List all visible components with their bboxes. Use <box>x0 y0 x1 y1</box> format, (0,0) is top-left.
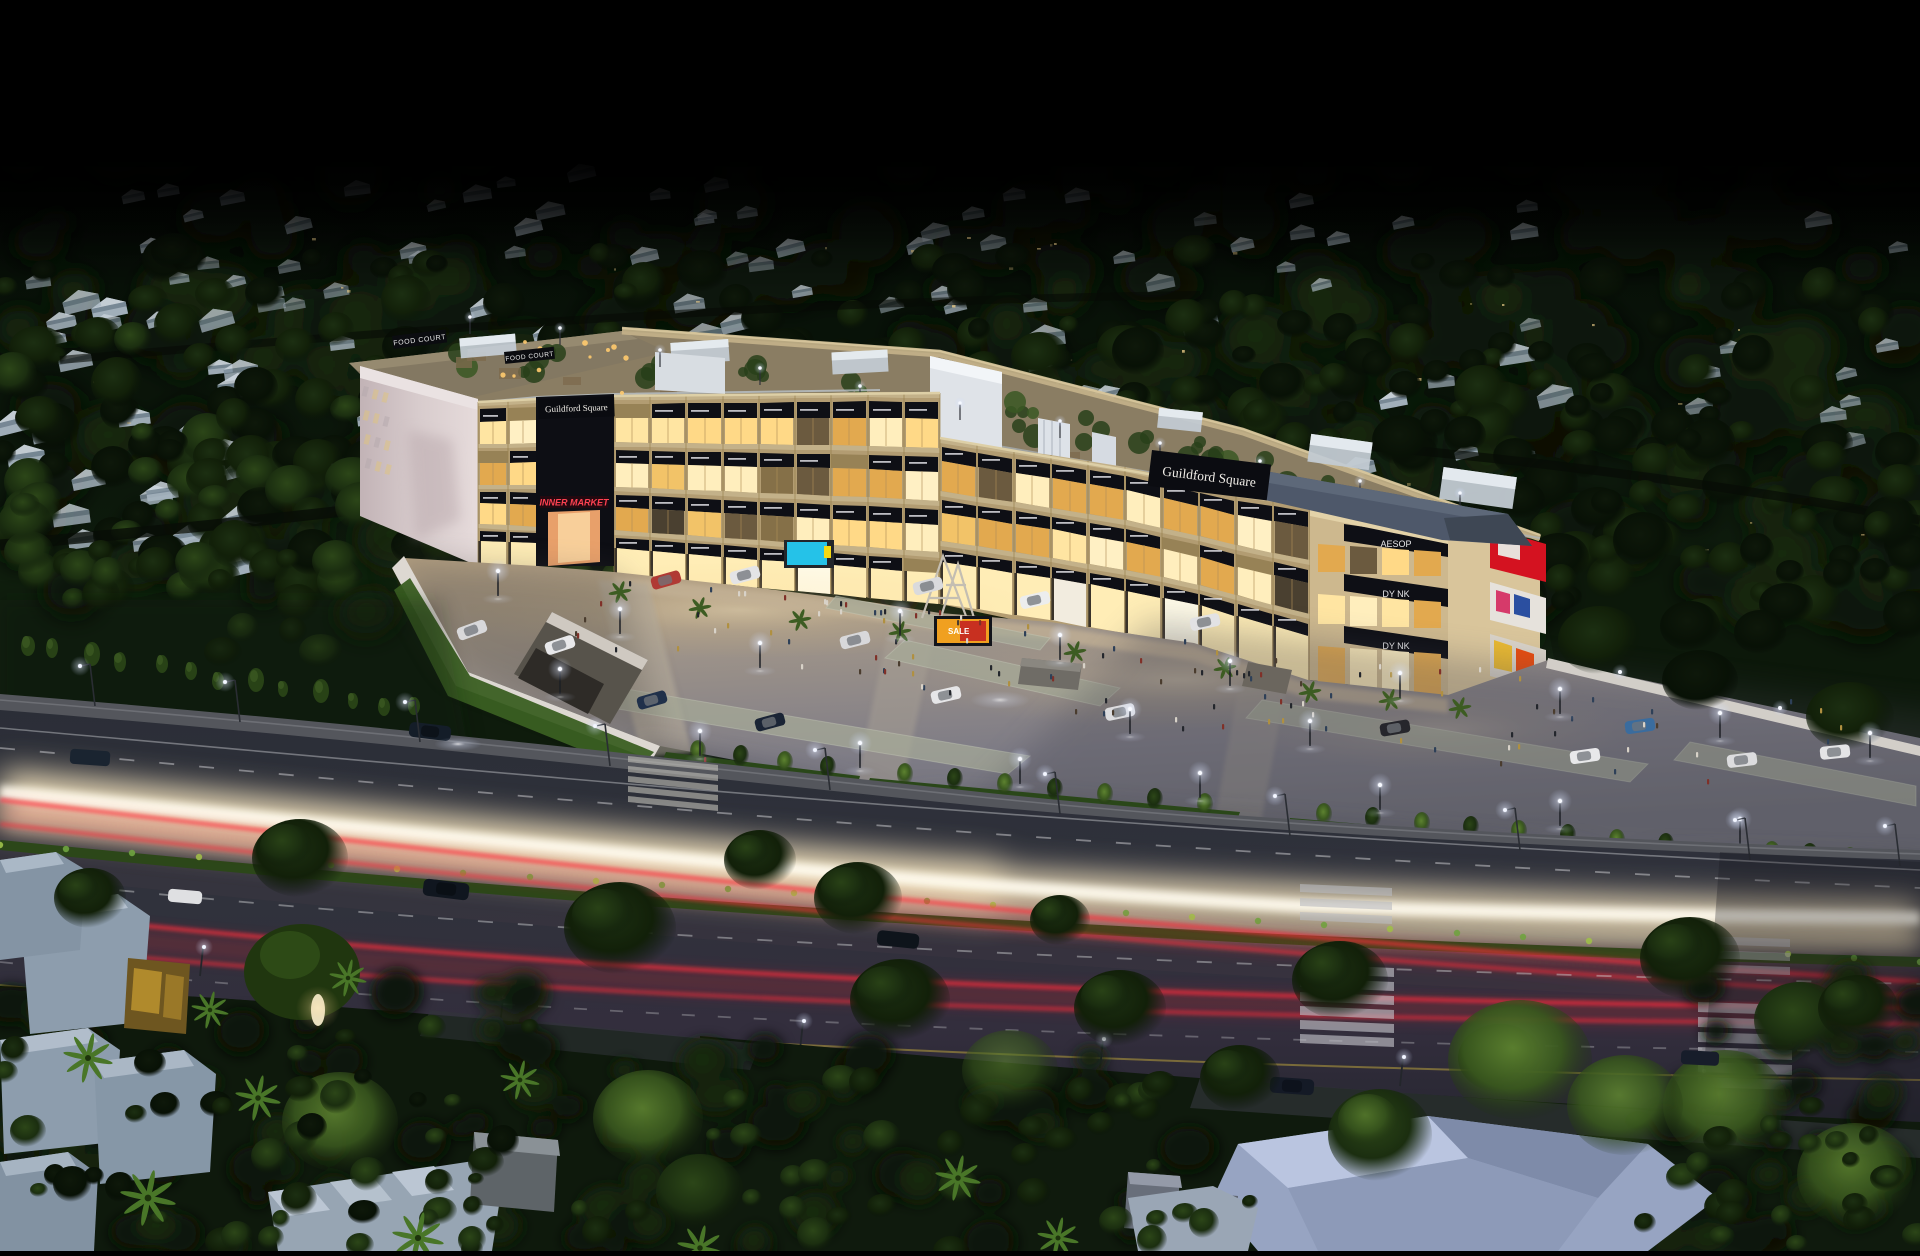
svg-text:SALE: SALE <box>948 627 970 636</box>
svg-text:AESOP: AESOP <box>1380 539 1411 549</box>
svg-text:INNER MARKET: INNER MARKET <box>540 498 611 508</box>
svg-text:DY NK: DY NK <box>1382 589 1409 599</box>
